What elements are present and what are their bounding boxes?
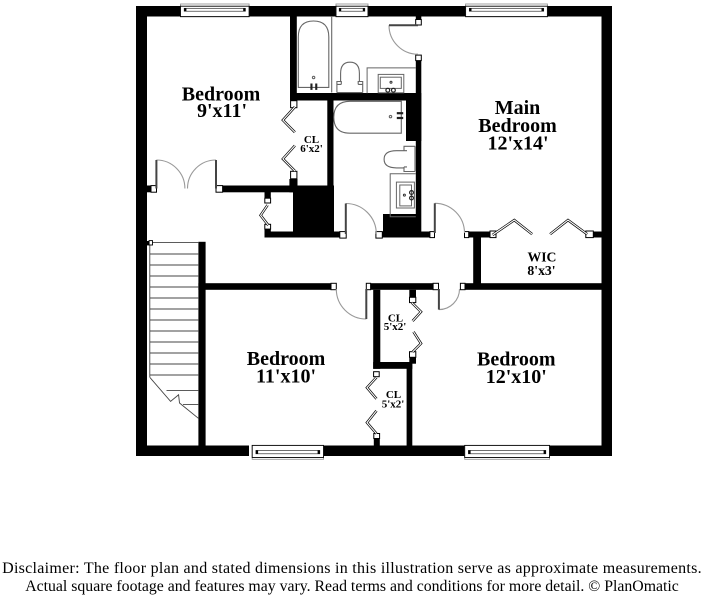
svg-text:6'x2': 6'x2' bbox=[300, 143, 323, 155]
svg-text:12'x14': 12'x14' bbox=[487, 133, 548, 155]
svg-text:5'x2': 5'x2' bbox=[384, 321, 407, 333]
svg-text:11'x10': 11'x10' bbox=[256, 366, 316, 388]
svg-text:8'x3': 8'x3' bbox=[527, 263, 555, 278]
svg-text:12'x10': 12'x10' bbox=[486, 366, 547, 388]
svg-text:9'x11': 9'x11' bbox=[197, 100, 247, 122]
svg-text:5'x2': 5'x2' bbox=[382, 398, 405, 410]
